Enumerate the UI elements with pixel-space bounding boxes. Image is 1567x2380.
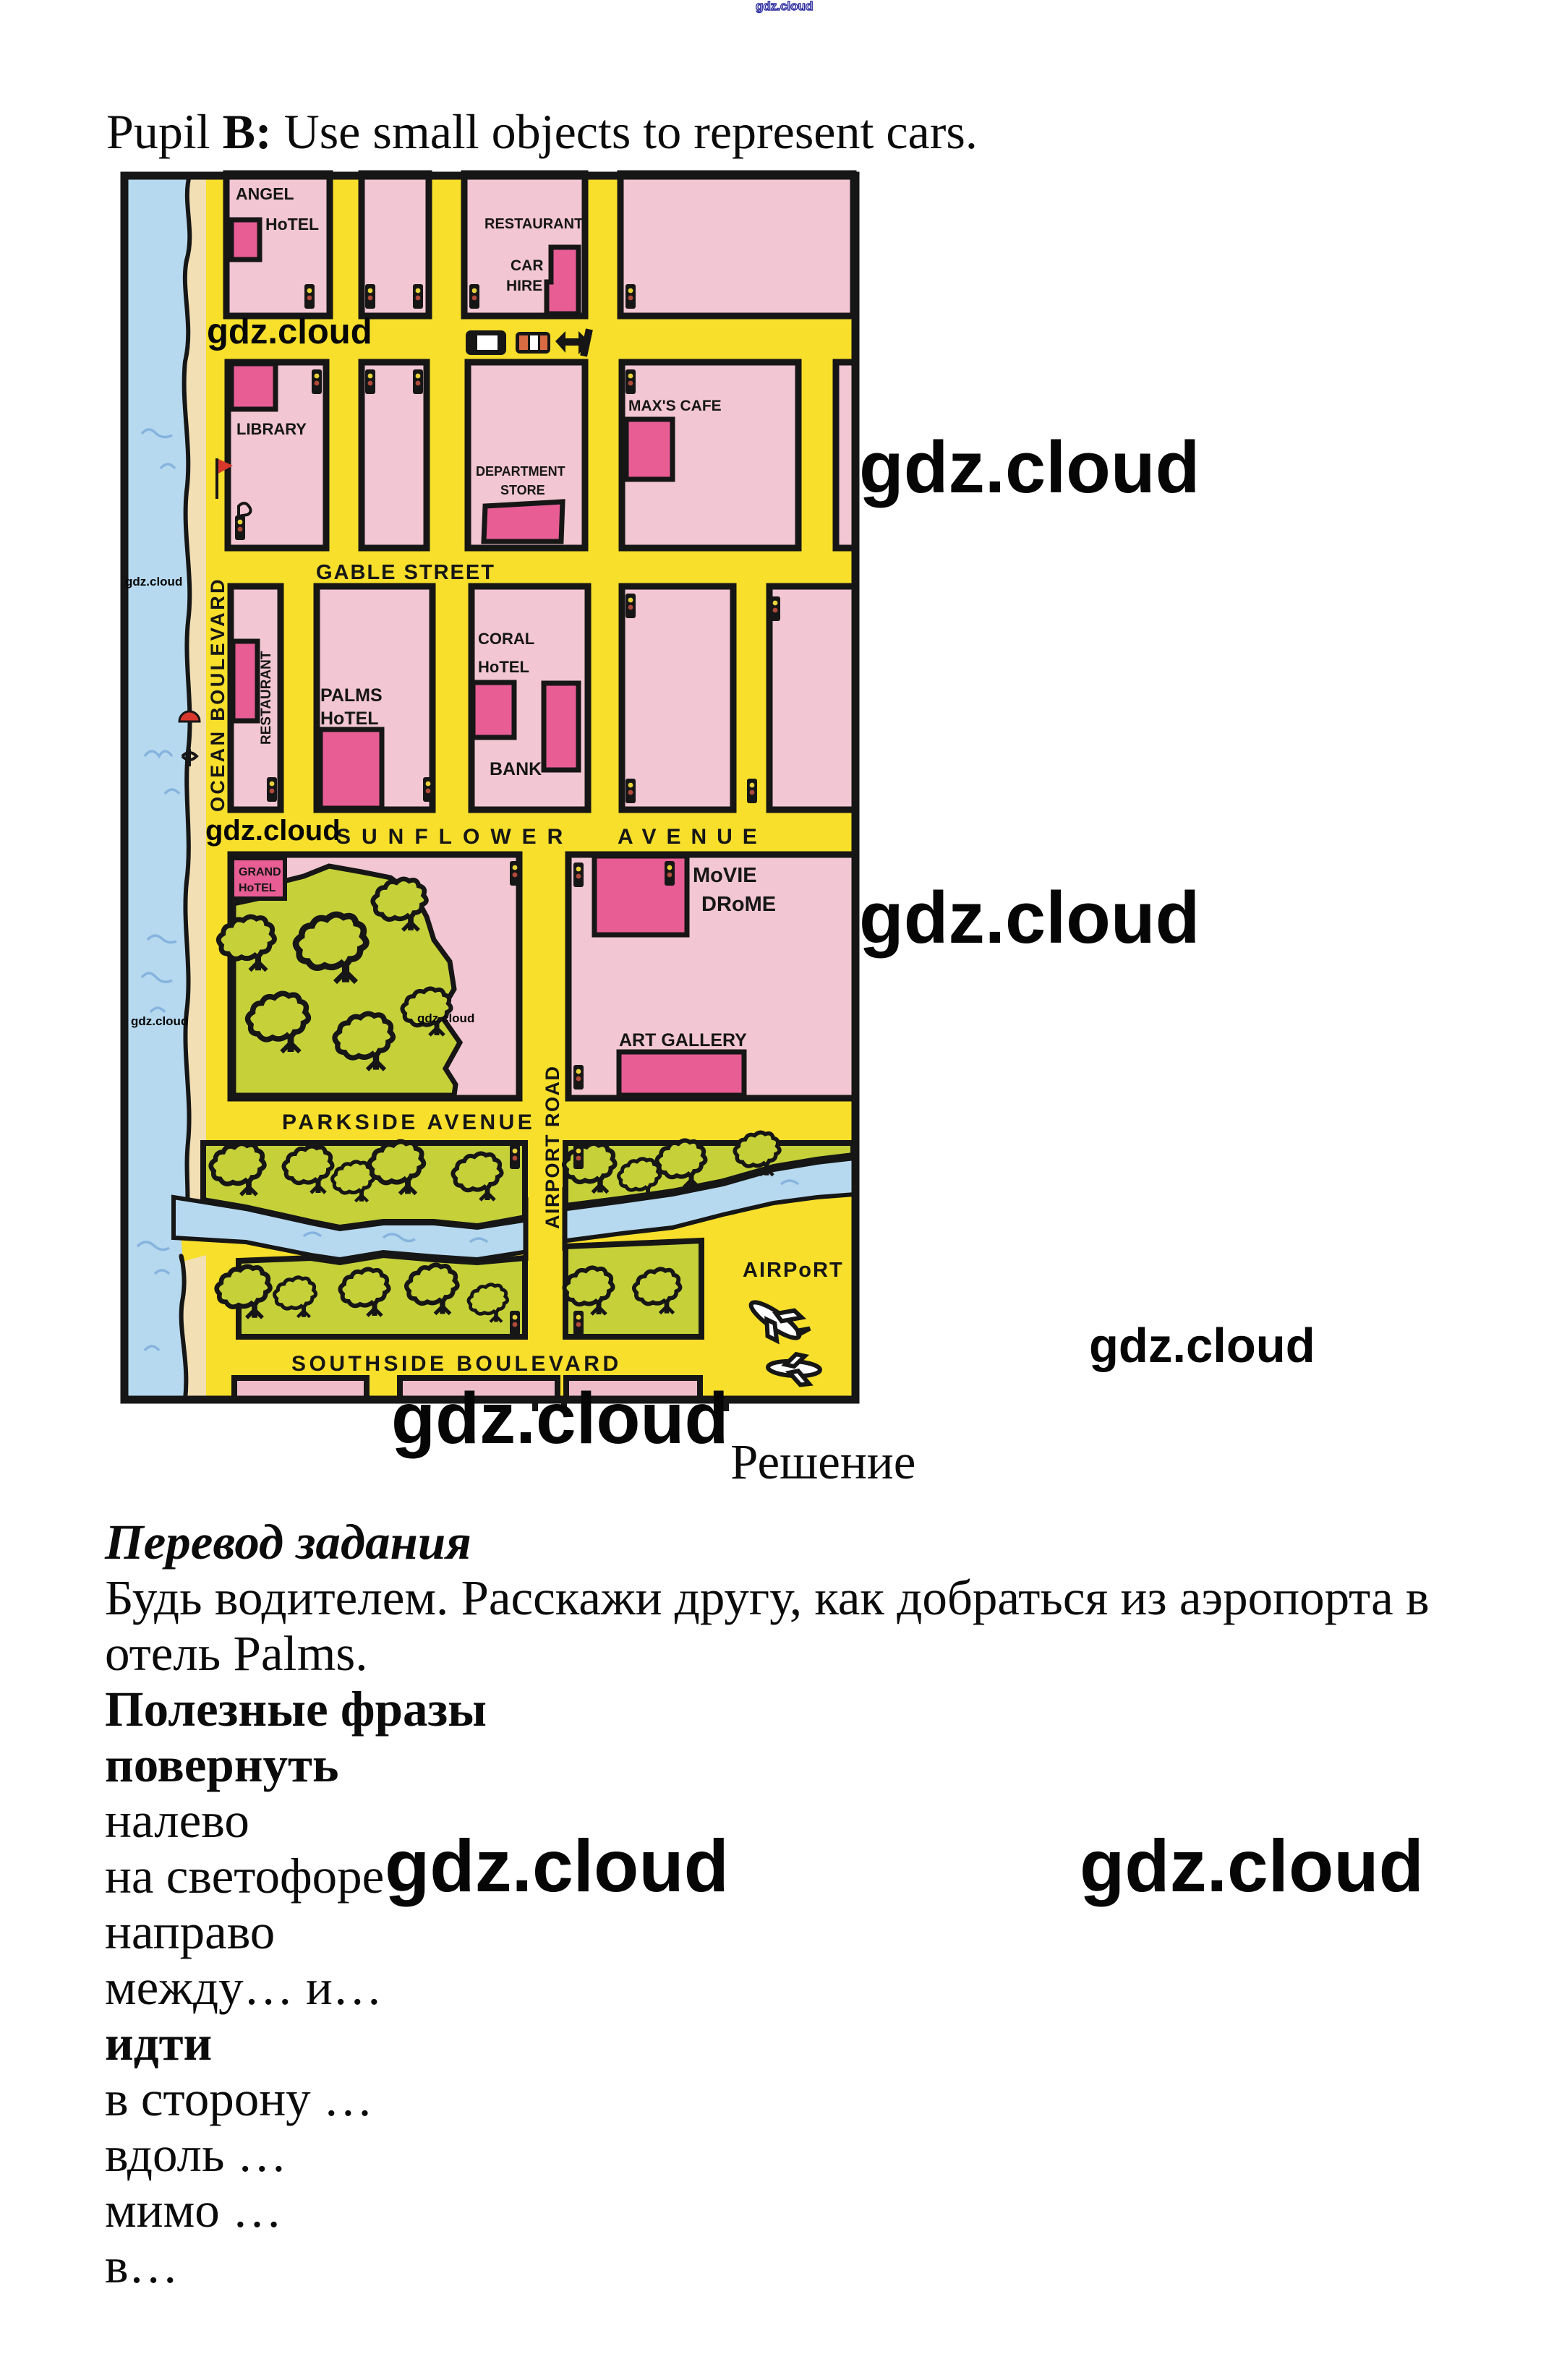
svg-text:DEPARTMENT: DEPARTMENT [476, 464, 565, 479]
svg-text:RESTAURANT: RESTAURANT [484, 216, 583, 232]
svg-text:HoTEL: HoTEL [265, 215, 319, 234]
svg-text:CORAL: CORAL [478, 630, 534, 648]
svg-text:GABLE STREET: GABLE STREET [316, 561, 495, 584]
svg-text:RESTAURANT: RESTAURANT [259, 651, 274, 745]
svg-text:AVENUE: AVENUE [618, 825, 767, 849]
svg-text:HoTEL: HoTEL [478, 658, 529, 676]
svg-text:OCEAN BOULEVARD: OCEAN BOULEVARD [207, 577, 229, 812]
svg-text:PARKSIDE AVENUE: PARKSIDE AVENUE [282, 1110, 535, 1134]
svg-text:STORE: STORE [500, 483, 545, 497]
svg-text:SOUTHSIDE BOULEVARD: SOUTHSIDE BOULEVARD [291, 1352, 622, 1376]
svg-text:MoVIE: MoVIE [693, 864, 757, 887]
svg-text:SUNFLOWER: SUNFLOWER [336, 825, 573, 849]
svg-text:HoTEL: HoTEL [320, 709, 379, 729]
svg-text:AIRPoRT: AIRPoRT [743, 1259, 844, 1282]
svg-text:HoTEL: HoTEL [239, 882, 276, 894]
svg-text:PALMS: PALMS [320, 685, 383, 706]
svg-text:GRAND: GRAND [239, 866, 281, 878]
svg-text:MAX'S CAFE: MAX'S CAFE [628, 398, 722, 414]
svg-text:AIRPORT ROAD: AIRPORT ROAD [542, 1066, 563, 1230]
svg-text:ANGEL: ANGEL [236, 184, 294, 203]
svg-text:LIBRARY: LIBRARY [236, 420, 307, 438]
svg-text:HIRE: HIRE [506, 278, 542, 294]
svg-text:CAR: CAR [511, 257, 544, 274]
svg-text:DRoME: DRoME [701, 893, 776, 916]
svg-text:BANK: BANK [490, 759, 542, 779]
svg-text:ART GALLERY: ART GALLERY [619, 1030, 747, 1050]
